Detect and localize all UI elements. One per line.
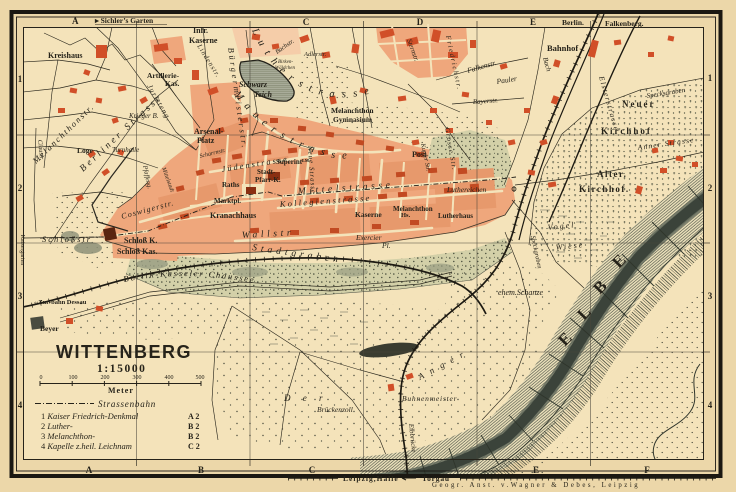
svg-text:Bahnhof: Bahnhof	[547, 43, 578, 53]
svg-text:Meter: Meter	[108, 386, 134, 395]
svg-text:Pfarr-K.: Pfarr-K.	[255, 176, 281, 184]
svg-text:Falkenberg.: Falkenberg.	[605, 19, 644, 28]
svg-text:‹‹Zur-bahn Dessau: ‹‹Zur-bahn Dessau	[34, 299, 87, 306]
svg-text:Neuer: Neuer	[622, 99, 656, 109]
svg-text:Teich: Teich	[254, 90, 272, 99]
svg-text:Alter.: Alter.	[597, 169, 627, 179]
svg-text:3 Melanchthon-: 3 Melanchthon-	[41, 431, 95, 441]
svg-text:500: 500	[196, 375, 205, 381]
svg-text:3: 3	[708, 291, 713, 301]
svg-text:A: A	[72, 16, 79, 26]
svg-text:Melanchthon: Melanchthon	[393, 205, 433, 213]
svg-text:200: 200	[101, 375, 110, 381]
svg-text:Melanchthon: Melanchthon	[331, 106, 374, 115]
svg-text:Buhnenmeister: Buhnenmeister	[402, 394, 457, 403]
svg-text:Kirchhof: Kirchhof	[601, 126, 652, 136]
svg-text:Geogr. Anst. v.Wagner & Debes,: Geogr. Anst. v.Wagner & Debes, Leipzig	[432, 482, 640, 489]
svg-text:Infr.: Infr.	[193, 26, 208, 35]
svg-text:Exercier: Exercier	[355, 233, 382, 242]
svg-text:F: F	[644, 465, 650, 475]
svg-text:4 Kapelle z.heil. Leichnam: 4 Kapelle z.heil. Leichnam	[41, 441, 132, 451]
svg-text:300: 300	[133, 375, 142, 381]
svg-text:Strassenbahn: Strassenbahn	[98, 399, 156, 409]
svg-text:4: 4	[18, 400, 23, 410]
svg-text:Kaisergarten: Kaisergarten	[19, 235, 25, 266]
svg-text:Platz: Platz	[197, 136, 215, 145]
svg-text:A: A	[86, 465, 93, 475]
svg-text:2 Luther-: 2 Luther-	[41, 421, 73, 431]
svg-text:1:15000: 1:15000	[97, 363, 147, 375]
svg-text:Brückenzoll: Brückenzoll	[317, 405, 353, 414]
svg-text:Schwarz: Schwarz	[239, 80, 268, 89]
svg-text:Hs.: Hs.	[401, 212, 411, 219]
svg-text:C: C	[309, 465, 316, 475]
svg-text:Berlin.: Berlin.	[562, 18, 584, 27]
svg-text:D: D	[417, 17, 424, 27]
svg-text:Kreishaus: Kreishaus	[48, 51, 83, 60]
svg-text:400: 400	[165, 375, 174, 381]
svg-text:Schloß K.: Schloß K.	[124, 236, 157, 245]
svg-text:Stadt-: Stadt-	[257, 168, 276, 176]
svg-text:0: 0	[40, 375, 43, 381]
svg-text:Leipzig,Halle: Leipzig,Halle	[343, 474, 399, 483]
svg-text:Krieger B.: Krieger B.	[128, 112, 159, 120]
svg-text:1: 1	[18, 74, 23, 84]
svg-text:2: 2	[708, 183, 713, 193]
svg-text:Kranachhaus: Kranachhaus	[210, 211, 256, 220]
svg-text:B 2: B 2	[188, 432, 199, 441]
svg-text:Arsenal-: Arsenal-	[194, 127, 224, 136]
svg-text:C 2: C 2	[188, 442, 200, 451]
svg-text:Raths: Raths	[222, 181, 240, 189]
svg-text:Schloßstr: Schloßstr	[42, 234, 92, 244]
svg-text:1 Kaiser Friedrich-Denkmal: 1 Kaiser Friedrich-Denkmal	[41, 411, 139, 421]
svg-text:Kirchhof.: Kirchhof.	[579, 184, 630, 194]
svg-text:2: 2	[18, 183, 23, 193]
svg-text:D e r: D e r	[283, 393, 328, 403]
svg-text:Pl.: Pl.	[381, 241, 391, 250]
svg-text:Marktpl.: Marktpl.	[214, 197, 241, 205]
svg-text:ehem.Schanze: ehem.Schanze	[498, 288, 544, 297]
svg-text:▸ Sichler’s Garten: ▸ Sichler’s Garten	[94, 16, 154, 25]
svg-text:C: C	[303, 17, 310, 27]
svg-text:E: E	[533, 465, 539, 475]
svg-text:WITTENBERG: WITTENBERG	[56, 342, 192, 362]
svg-text:Turnhalle: Turnhalle	[112, 146, 139, 154]
svg-text:Beyer: Beyer	[40, 324, 59, 333]
svg-text:A 2: A 2	[188, 412, 199, 421]
svg-text:Schloß Kas.: Schloß Kas.	[117, 247, 157, 256]
svg-text:Kas.: Kas.	[165, 79, 180, 88]
svg-text:Adlerstr.: Adlerstr.	[303, 51, 327, 58]
svg-text:Loge: Loge	[77, 146, 94, 155]
svg-text:E: E	[530, 17, 536, 27]
svg-text:3: 3	[18, 291, 23, 301]
svg-text:Lutherhaus: Lutherhaus	[438, 212, 473, 220]
svg-text:4: 4	[708, 400, 713, 410]
svg-text:Kaserne: Kaserne	[355, 210, 382, 219]
svg-text:Gymnasium: Gymnasium	[333, 115, 373, 124]
svg-text:1: 1	[708, 73, 713, 83]
svg-text:B 2: B 2	[188, 422, 199, 431]
svg-text:100: 100	[69, 375, 78, 381]
svg-text:B: B	[198, 465, 204, 475]
svg-text:Luthereichen: Luthereichen	[446, 185, 487, 194]
